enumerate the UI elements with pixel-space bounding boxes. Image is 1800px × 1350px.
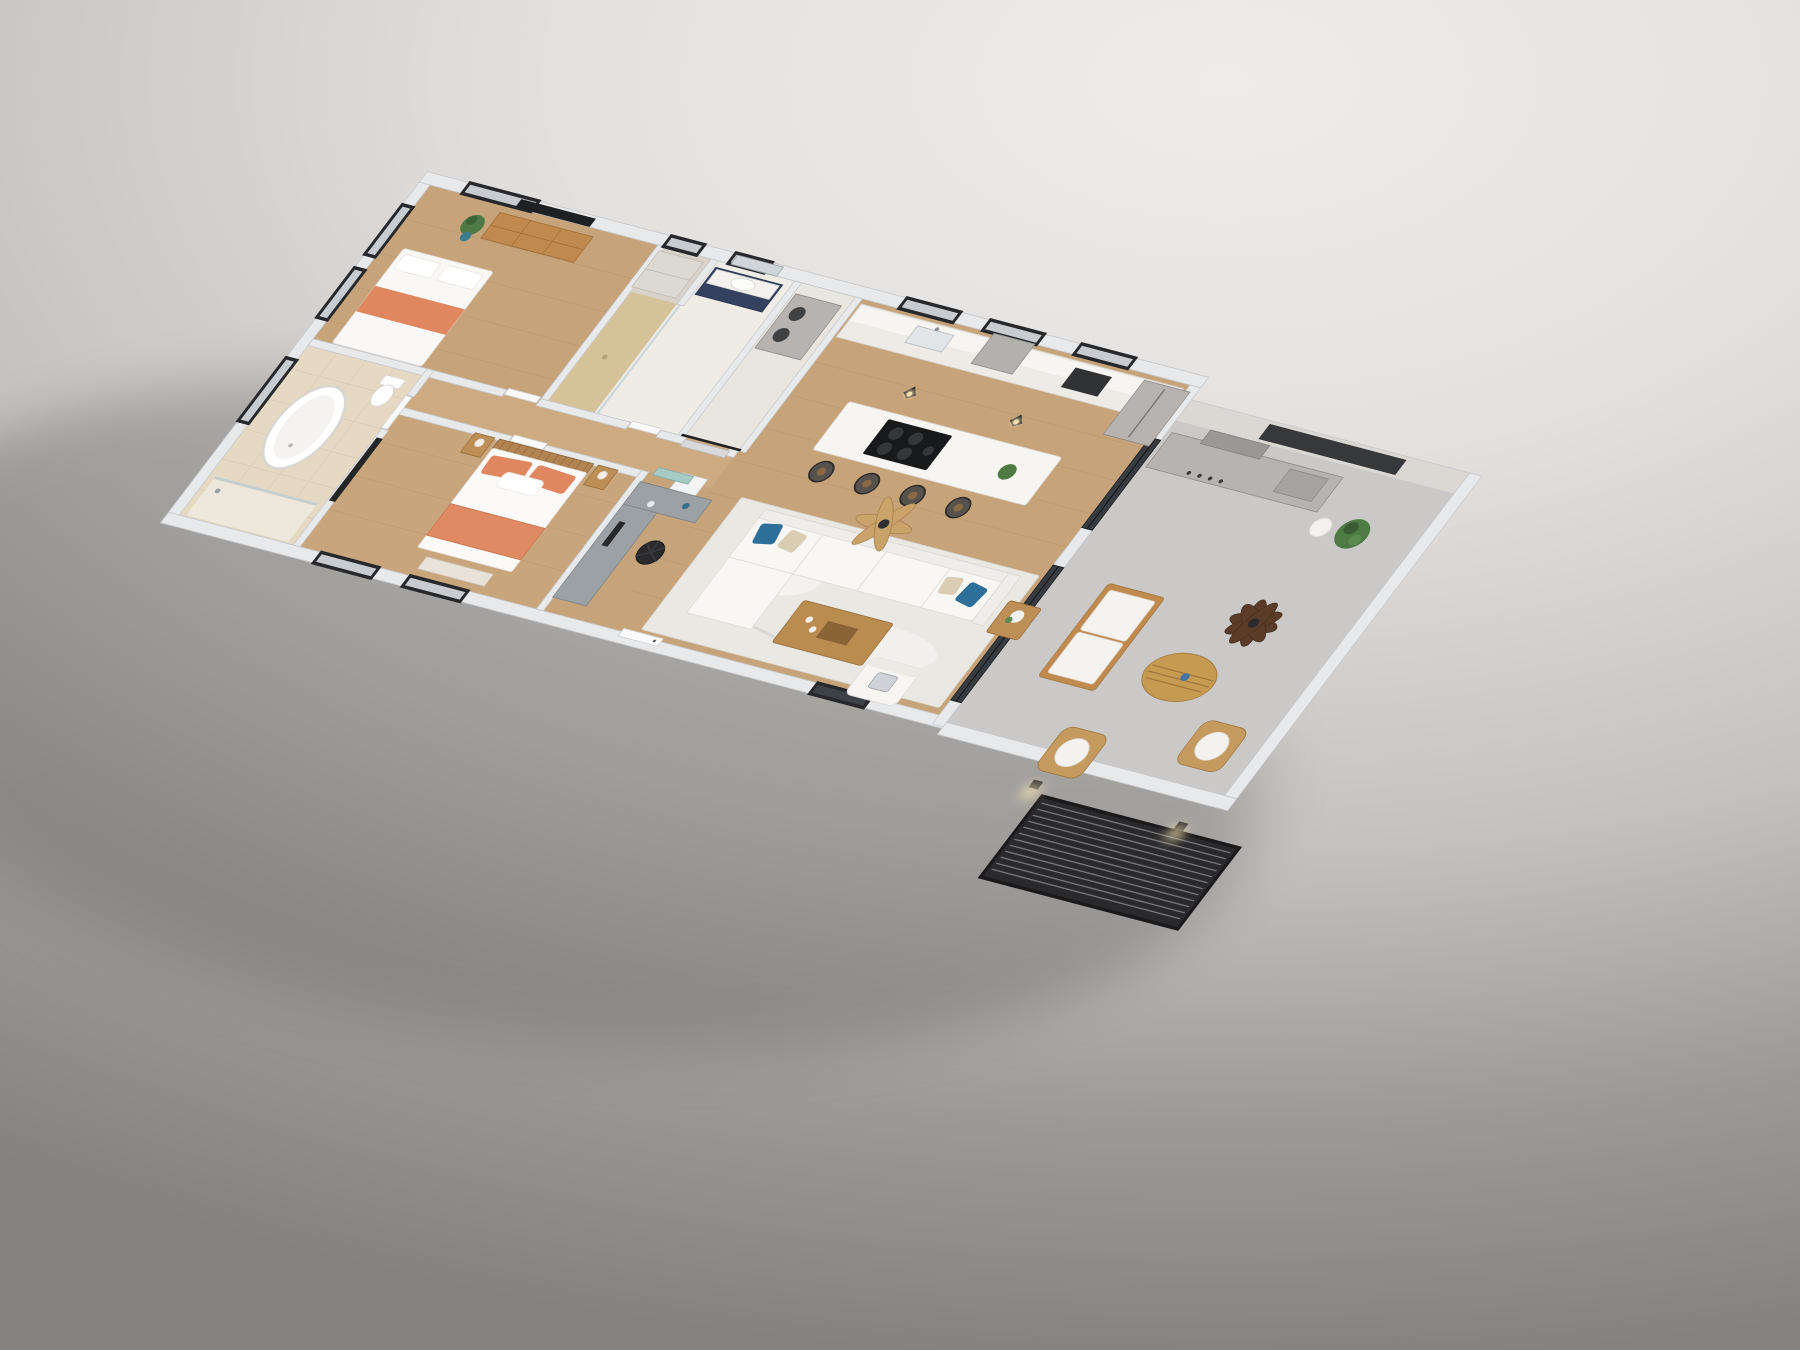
isometric-plan <box>0 105 1549 1178</box>
render-canvas <box>0 0 1800 1350</box>
floorplan-svg <box>0 0 1800 1350</box>
